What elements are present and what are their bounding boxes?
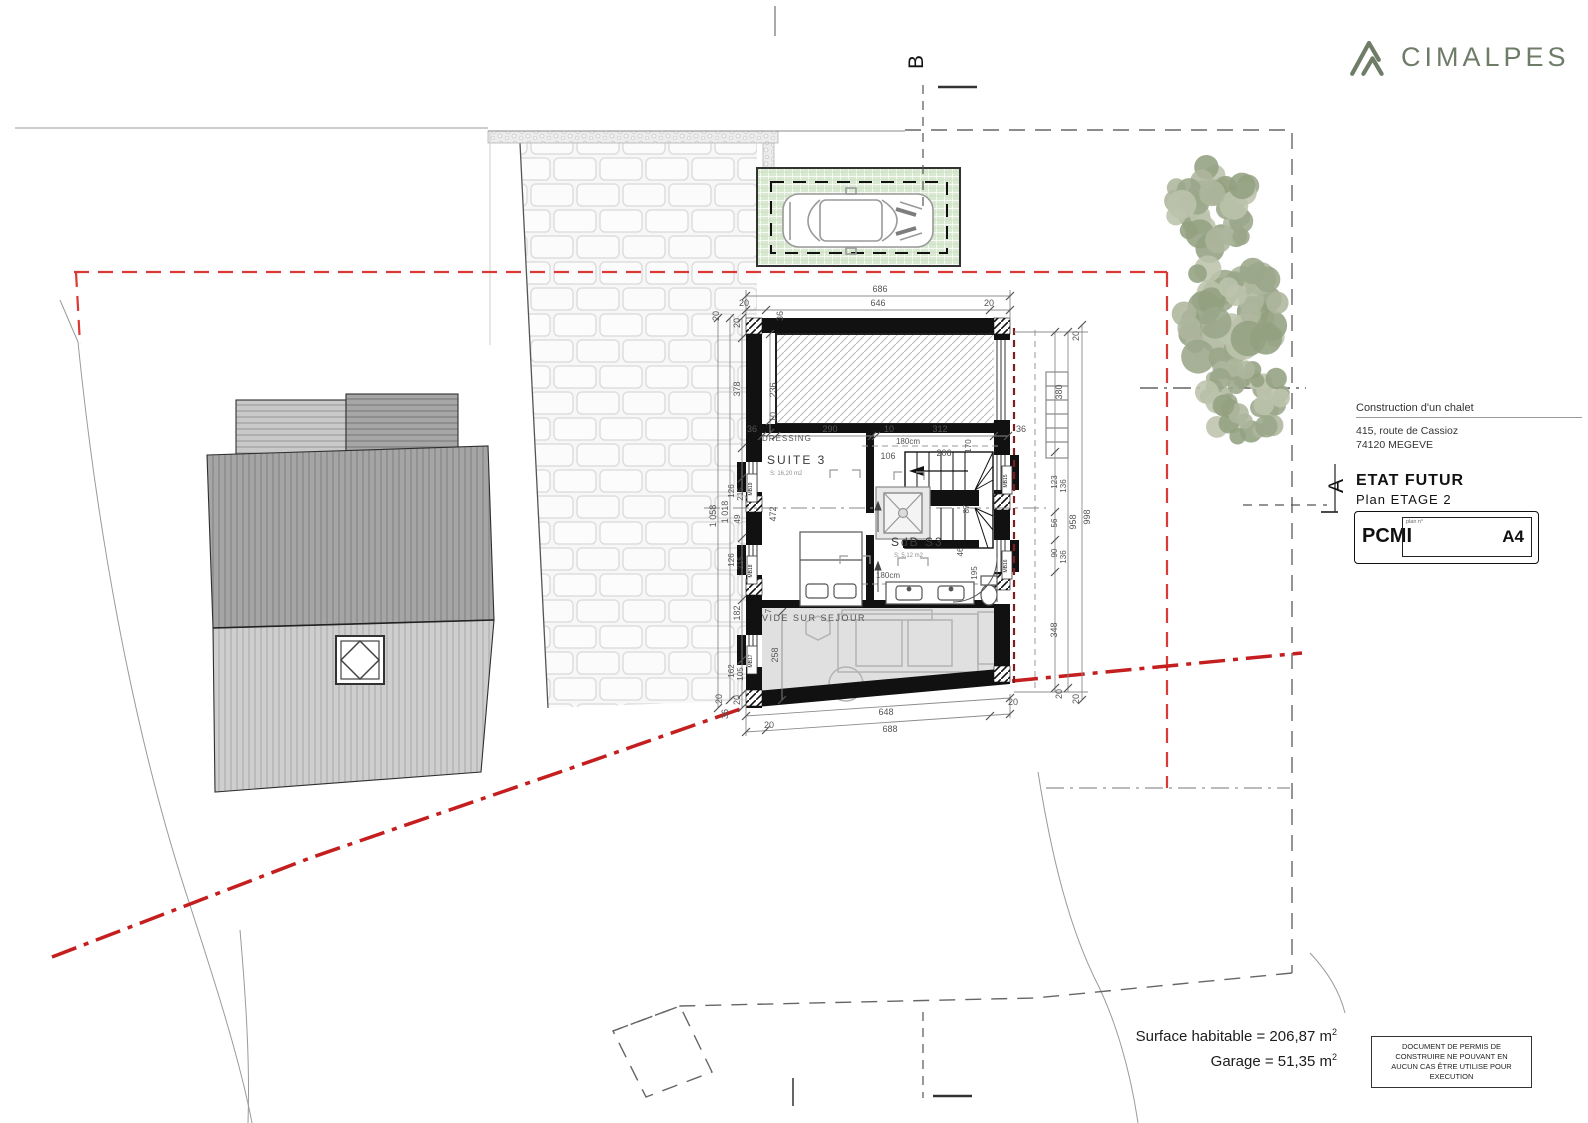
site-plan: DRESSINGSUITE 3S: 16,20 m2SdB S3S: 5,12 … — [0, 0, 1588, 1123]
plan-label: MB19 — [748, 482, 754, 495]
plan-label: 646 — [870, 298, 885, 308]
plan-label: 90 — [1050, 548, 1059, 557]
plan-label: 20 — [714, 694, 724, 704]
state-label: ETAT FUTUR — [1356, 472, 1464, 490]
plan-state-block: ETAT FUTUR Plan ETAGE 2 — [1356, 472, 1464, 507]
plan-label: 195 — [970, 566, 979, 580]
plan-label: 36 — [1016, 424, 1026, 434]
plan-label: 20 — [732, 695, 742, 705]
plan-label: 1 018 — [720, 501, 730, 524]
tree-foliage — [1254, 395, 1274, 415]
mountain-icon — [1346, 36, 1392, 78]
plan-label: 20 — [1071, 331, 1081, 341]
plan-label: 36 — [747, 424, 757, 434]
plan-label: 180cm — [876, 571, 900, 580]
tree-foliage — [1228, 377, 1245, 394]
tree-foliage — [1266, 292, 1288, 314]
plan-label: 106 — [880, 451, 895, 461]
tree — [1172, 255, 1289, 377]
tree-foliage — [1254, 266, 1280, 292]
plan-label: 20 — [764, 720, 774, 730]
tree-foliage — [1236, 360, 1255, 379]
disclaimer-line: CONSTRUIRE NE POUVANT EN — [1395, 1052, 1507, 1062]
plan-label: 312 — [932, 424, 947, 434]
tree-foliage — [1213, 395, 1235, 417]
pcmi-cartridge: PCMI plan n° A4 — [1354, 511, 1539, 564]
plan-label: 7 — [764, 608, 773, 613]
sheet-box: plan n° A4 — [1402, 517, 1532, 557]
address-line2: 74120 MEGEVE — [1356, 438, 1582, 452]
plan-label: 20 — [1071, 694, 1081, 704]
shower — [876, 487, 930, 539]
plan-label: 49 — [733, 514, 742, 523]
tree-foliage — [1181, 340, 1215, 374]
plan-label: 290 — [822, 424, 837, 434]
plan-label: 20 — [739, 298, 749, 308]
plan-no-label: plan n° — [1406, 519, 1423, 525]
plan-label: 380 — [1054, 384, 1064, 399]
plan-label: 215 — [736, 487, 745, 501]
plan-label: 215 — [736, 556, 745, 570]
project-title: Construction d'un chalet — [1356, 402, 1582, 418]
plan-label: 136 — [1059, 479, 1068, 493]
plan-label: VIDE SUR SEJOUR — [762, 613, 866, 623]
plan-label: 1 058 — [708, 505, 718, 528]
skylight — [336, 636, 384, 684]
plan-label: 126 — [727, 553, 736, 567]
tree-foliage — [1199, 180, 1225, 206]
plan-label: 20 — [1008, 697, 1018, 707]
plan-label: 648 — [878, 707, 893, 717]
tree — [1195, 359, 1290, 445]
plan-label: 180cm — [896, 437, 920, 446]
parking-area — [757, 168, 960, 266]
vanity — [886, 582, 974, 604]
tree — [1164, 155, 1259, 263]
plan-label: 378 — [732, 381, 742, 396]
existing-building — [207, 394, 494, 792]
plan-label: 170 — [964, 439, 973, 453]
plan-label: S: 16,20 m2 — [770, 471, 803, 477]
tree-foliage — [1172, 301, 1197, 326]
trees — [1164, 155, 1290, 444]
plan-label: 36 — [775, 311, 785, 321]
plan-label: 162 — [727, 664, 736, 678]
tree-foliage — [1225, 285, 1246, 306]
disclaimer-box: DOCUMENT DE PERMIS DE CONSTRUIRE NE POUV… — [1371, 1036, 1532, 1088]
plan-label: 20 — [1054, 689, 1064, 699]
plan-label: 87 — [962, 504, 971, 513]
section-marker-b: B — [905, 55, 929, 69]
cimalpes-logo: CIMALPES — [1346, 36, 1570, 78]
disclaimer-line: AUCUN CAS ÊTRE UTILISE POUR — [1391, 1062, 1511, 1072]
plan-label: S: 5,12 m2 — [894, 553, 924, 559]
plan-label: 686 — [872, 284, 887, 294]
plan-label: 206 — [936, 448, 951, 458]
tree-foliage — [1229, 173, 1255, 199]
surface-garage: Garage = 51,35 m2 — [997, 1047, 1337, 1072]
plan-label: 10 — [884, 424, 894, 434]
plan-label: 20 — [984, 298, 994, 308]
plan-label: 472 — [768, 506, 778, 521]
plan-label: MB17 — [748, 654, 754, 667]
section-marker-a: A — [1325, 479, 1349, 493]
tree-foliage — [1199, 307, 1231, 339]
tree-foliage — [1266, 368, 1287, 389]
setback-lines — [1046, 388, 1306, 788]
plan-level-label: Plan ETAGE 2 — [1356, 492, 1464, 507]
plan-label: 258 — [770, 647, 780, 662]
car-top-view — [783, 188, 933, 254]
tree-foliage — [1180, 222, 1198, 240]
tree-foliage — [1231, 321, 1267, 357]
tree-foliage — [1167, 190, 1196, 219]
sheet-number: A4 — [1502, 527, 1524, 547]
areas-block: Surface habitable = 206,87 m2 Garage = 5… — [997, 1022, 1337, 1072]
plan-label: 998 — [1082, 509, 1092, 524]
address-line1: 415, route de Cassioz — [1356, 424, 1582, 438]
tree-foliage — [1232, 228, 1249, 245]
plan-label: 56 — [1050, 518, 1059, 527]
logo-text: CIMALPES — [1401, 42, 1570, 73]
plan-label: DRESSING — [762, 434, 812, 443]
plan-label: 10 — [768, 412, 778, 422]
plan-label: MB18 — [748, 564, 754, 577]
tree-foliage — [1255, 415, 1277, 437]
plan-label: 46 — [956, 547, 965, 556]
plan-label: SUITE 3 — [767, 453, 826, 467]
plan-label: 136 — [1059, 550, 1068, 564]
plan-label: 123 — [1050, 475, 1059, 489]
tree-foliage — [1205, 227, 1231, 253]
new-chalet — [704, 290, 1088, 736]
surface-habitable: Surface habitable = 206,87 m2 — [997, 1022, 1337, 1047]
floor-plan-page: DRESSINGSUITE 3S: 16,20 m2SdB S3S: 5,12 … — [0, 0, 1588, 1123]
plan-label: 36 — [720, 709, 730, 719]
plan-label: 182 — [732, 605, 742, 620]
plan-label: SdB S3 — [891, 535, 944, 549]
plan-label: MB16 — [1003, 559, 1009, 572]
tree-foliage — [1188, 264, 1207, 283]
plan-label: 126 — [727, 484, 736, 498]
disclaimer-line: DOCUMENT DE PERMIS DE — [1402, 1042, 1501, 1052]
terrace-hatched — [776, 334, 1006, 424]
plan-label: 688 — [882, 724, 897, 734]
plan-label: 236 — [768, 382, 778, 397]
plan-label: MB15 — [1003, 474, 1009, 487]
plan-label: 348 — [1049, 622, 1059, 637]
bed — [800, 532, 862, 606]
plan-label: 105 — [736, 667, 745, 681]
title-block: Construction d'un chalet 415, route de C… — [1356, 402, 1582, 452]
disclaimer-line: EXECUTION — [1430, 1072, 1474, 1082]
plan-label: 20 — [732, 318, 742, 328]
plan-label: 958 — [1068, 514, 1078, 529]
plan-label: 20 — [711, 311, 721, 321]
